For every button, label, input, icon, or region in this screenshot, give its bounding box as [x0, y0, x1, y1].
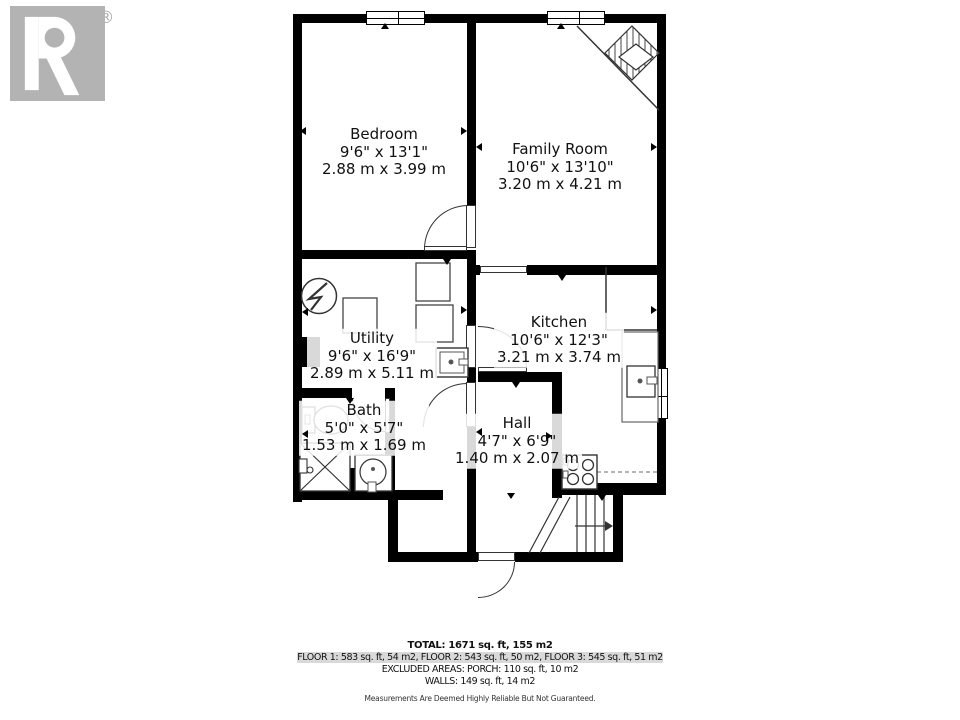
- room-dim-metric: 2.88 m x 3.99 m: [322, 161, 446, 179]
- basin-icon: [355, 455, 392, 492]
- floor-plan: REALTOR®: [0, 0, 960, 720]
- room-dim-imperial: 9'6" x 16'9": [310, 347, 434, 365]
- room-name: Kitchen: [497, 314, 621, 332]
- dimension-marker: [443, 259, 451, 265]
- room-label-kitchen: Kitchen 10'6" x 12'3" 3.21 m x 3.74 m: [494, 313, 624, 368]
- room-dim-metric: 1.40 m x 2.07 m: [455, 450, 579, 468]
- room-dim-imperial: 5'0" x 5'7": [302, 419, 426, 437]
- dimension-marker: [476, 143, 482, 151]
- dimension-marker: [558, 275, 566, 281]
- room-dim-metric: 2.89 m x 5.11 m: [310, 365, 434, 383]
- room-label-utility: Utility 9'6" x 16'9" 2.89 m x 5.11 m: [307, 329, 437, 384]
- dimension-marker: [346, 398, 354, 404]
- kitchen-sink-icon: [622, 332, 658, 422]
- dimension-marker: [461, 306, 467, 314]
- appliance-icon: [343, 298, 377, 333]
- room-label-hall: Hall 4'7" x 6'9" 1.40 m x 2.07 m: [452, 414, 582, 469]
- stairs: [529, 495, 613, 553]
- dimension-marker: [476, 428, 482, 436]
- dimension-marker: [557, 23, 565, 29]
- room-dim-metric: 3.21 m x 3.74 m: [497, 349, 621, 367]
- room-dim-imperial: 9'6" x 13'1": [322, 143, 446, 161]
- dimension-marker: [300, 127, 306, 135]
- room-name: Hall: [455, 415, 579, 433]
- dimension-marker: [381, 23, 389, 29]
- utility-sink-icon: [436, 348, 468, 377]
- walls-area-text: WALLS: 149 sq. ft, 14 m2: [0, 676, 960, 687]
- fixtures-layer: [0, 0, 960, 720]
- dimension-marker: [302, 308, 308, 316]
- room-dim-imperial: 10'6" x 12'3": [497, 331, 621, 349]
- floor-areas-text: FLOOR 1: 583 sq. ft, 54 m2, FLOOR 2: 543…: [297, 652, 663, 663]
- dimension-marker: [546, 432, 552, 440]
- dimension-marker: [598, 495, 606, 501]
- room-dim-metric: 1.53 m x 1.69 m: [302, 437, 426, 455]
- dimension-marker: [302, 430, 308, 438]
- dimension-marker: [651, 306, 657, 314]
- room-label-bath: Bath 5'0" x 5'7" 1.53 m x 1.69 m: [299, 401, 429, 456]
- room-label-bedroom: Bedroom 9'6" x 13'1" 2.88 m x 3.99 m: [319, 125, 449, 180]
- room-dim-imperial: 4'7" x 6'9": [455, 432, 579, 450]
- room-name: Bedroom: [322, 126, 446, 144]
- dimension-marker: [512, 382, 520, 388]
- room-dim-imperial: 10'6" x 13'10": [498, 158, 622, 176]
- room-dim-metric: 3.20 m x 4.21 m: [498, 176, 622, 194]
- room-name: Utility: [310, 330, 434, 348]
- dimension-marker: [461, 127, 467, 135]
- room-name: Family Room: [498, 141, 622, 159]
- area-summary: TOTAL: 1671 sq. ft, 155 m2 FLOOR 1: 583 …: [0, 640, 960, 703]
- total-area-text: TOTAL: 1671 sq. ft, 155 m2: [0, 640, 960, 651]
- excluded-areas-text: EXCLUDED AREAS: PORCH: 110 sq. ft, 10 m2: [0, 664, 960, 675]
- disclaimer-text: Measurements Are Deemed Highly Reliable …: [0, 694, 960, 703]
- room-name: Bath: [302, 402, 426, 420]
- appliance-icon: [416, 263, 450, 301]
- fireplace-icon: [577, 26, 659, 110]
- dimension-marker: [507, 493, 515, 499]
- dimension-marker: [651, 143, 657, 151]
- room-label-family-room: Family Room 10'6" x 13'10" 3.20 m x 4.21…: [495, 140, 625, 195]
